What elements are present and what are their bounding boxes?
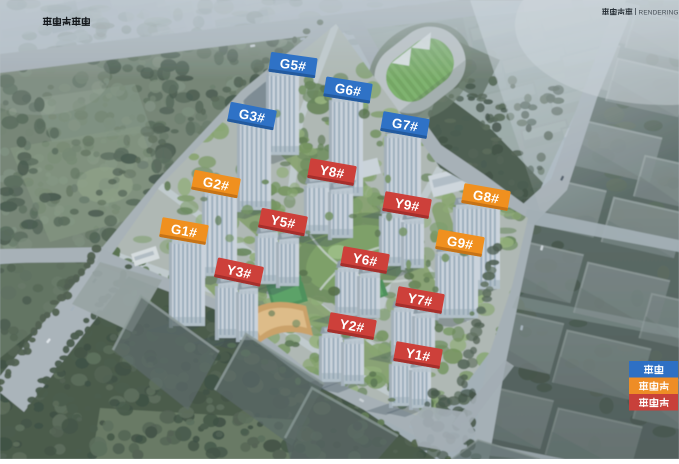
svg-text:RENDERING: RENDERING	[639, 9, 679, 16]
